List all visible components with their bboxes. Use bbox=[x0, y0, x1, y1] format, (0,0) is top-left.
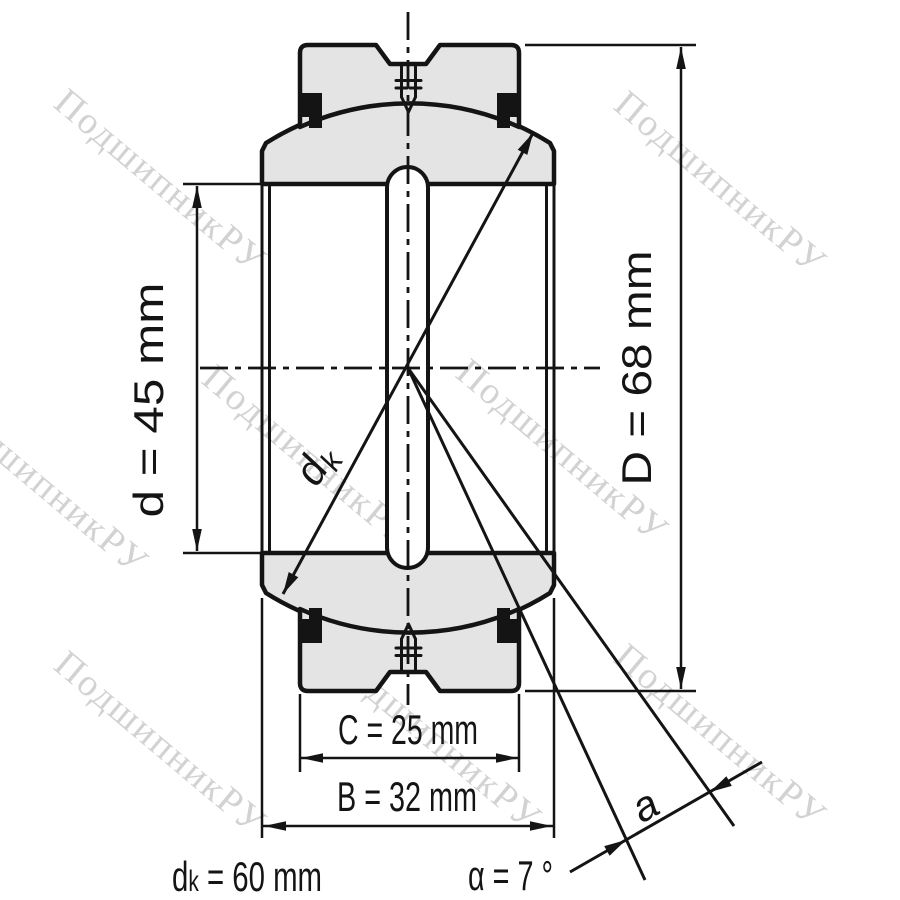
bearing-drawing: ПодшипникРУПодшипникРУПодшипникРУПодшипн… bbox=[0, 0, 900, 900]
dim-label-B: B = 32 mm bbox=[337, 773, 477, 820]
dim-label-alpha: α = 7 ° bbox=[468, 852, 553, 899]
dim-label-d: d = 45 mm bbox=[125, 283, 172, 518]
dim-label-D: D = 68 mm bbox=[613, 251, 660, 486]
dim-label-C: C = 25 mm bbox=[338, 706, 478, 753]
technical-drawing-page: ПодшипникРУПодшипникРУПодшипникРУПодшипн… bbox=[0, 0, 900, 900]
